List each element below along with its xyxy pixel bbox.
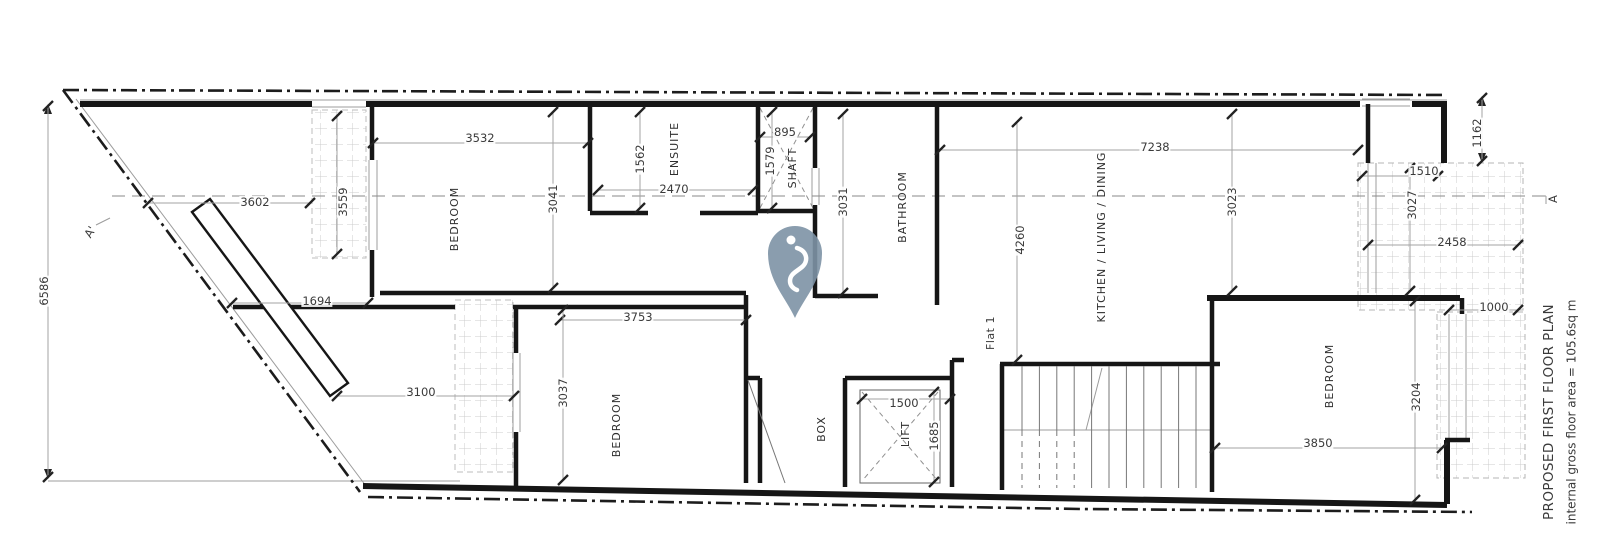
room-bedroom-right: BEDROOM <box>1324 343 1336 409</box>
dim-3027: 3027 <box>1406 189 1418 220</box>
dim-3532: 3532 <box>464 132 495 144</box>
dim-1162: 1162 <box>1471 117 1483 148</box>
dim-3850: 3850 <box>1302 437 1333 449</box>
room-bathroom: BATHROOM <box>897 170 909 244</box>
dim-2470: 2470 <box>658 183 689 195</box>
pin-dot-icon <box>787 236 796 245</box>
floor-plan-canvas <box>0 0 1600 535</box>
hatch-terrace-bottom-right <box>1437 312 1525 478</box>
dim-6586: 6586 <box>38 275 50 306</box>
dim-3031: 3031 <box>837 186 849 217</box>
dim-3753: 3753 <box>622 311 653 323</box>
hatch-left-shaft <box>312 110 366 258</box>
dim-1000: 1000 <box>1478 301 1509 313</box>
room-lift: LIFT <box>900 420 912 448</box>
door-swing-line <box>748 380 785 483</box>
drawing-title: PROPOSED FIRST FLOOR PLAN <box>1542 303 1556 521</box>
dim-1500: 1500 <box>888 397 919 409</box>
dim-3023: 3023 <box>1226 186 1238 217</box>
dim-1685: 1685 <box>928 420 940 451</box>
drawing-area-note: internal gross floor area = 105.6sq m <box>1566 299 1579 526</box>
dim-1510: 1510 <box>1408 165 1439 177</box>
room-kitchen-living-dining: KITCHEN / LIVING / DINING <box>1096 151 1108 324</box>
dim-3041: 3041 <box>547 183 559 214</box>
dim-3559: 3559 <box>337 186 349 217</box>
dim-1562: 1562 <box>634 143 646 174</box>
dim-1579: 1579 <box>764 145 776 176</box>
room-bedroom-top: BEDROOM <box>449 186 461 252</box>
dim-895: 895 <box>773 126 797 138</box>
dim-4260: 4260 <box>1014 224 1026 255</box>
room-box: BOX <box>816 415 828 443</box>
section-marker-a: A <box>1547 194 1559 204</box>
room-bedroom-left: BEDROOM <box>611 392 623 458</box>
room-ensuite: ENSUITE <box>669 121 681 177</box>
dim-3204: 3204 <box>1410 381 1422 412</box>
dim-2458: 2458 <box>1436 236 1467 248</box>
dim-3100: 3100 <box>405 386 436 398</box>
floor-plan-drawing: 6586 3602 3559 A' 3532 BEDROOM 3041 1562… <box>0 0 1600 535</box>
location-pin-watermark <box>768 226 822 318</box>
dim-3037: 3037 <box>557 377 569 408</box>
unit-label-flat-1: Flat 1 <box>985 315 997 351</box>
dim-3602: 3602 <box>239 196 270 208</box>
dim-7238: 7238 <box>1139 141 1170 153</box>
hatch-left-strip <box>455 300 513 472</box>
room-shaft: SHAFT <box>787 147 799 190</box>
dim-1694: 1694 <box>301 295 332 307</box>
